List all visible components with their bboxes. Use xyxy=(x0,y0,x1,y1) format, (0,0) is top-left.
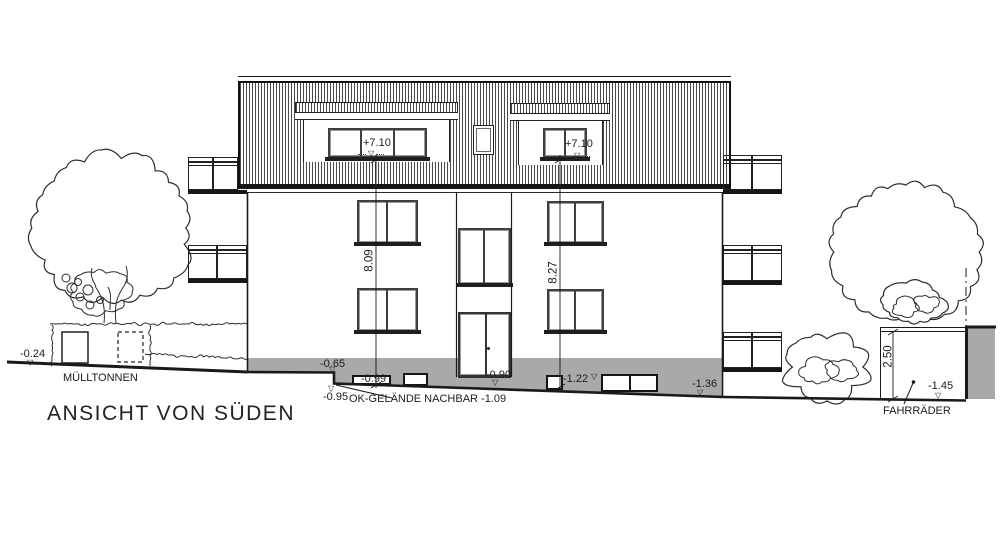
balcony-railing-left-top xyxy=(188,157,238,190)
garbage-bin-dashed xyxy=(118,332,143,362)
window-upper-left xyxy=(357,200,418,244)
elevation-drawing: ANSICHT VON SÜDEN MÜLLTONNEN FAHRRÄDER O… xyxy=(0,0,1000,537)
window-mullion xyxy=(629,376,631,390)
label-muelltonnen: MÜLLTONNEN xyxy=(63,373,138,385)
label-ok-gelaende: OK-GELÄNDE NACHBAR -1.09 xyxy=(349,394,506,406)
basement-window-3 xyxy=(546,375,563,390)
basement-window-2 xyxy=(403,373,428,386)
railing-post xyxy=(751,156,753,189)
bush-right-inner2 xyxy=(825,360,858,382)
sill xyxy=(544,330,607,334)
level-basement-mid: -1.22 xyxy=(563,374,588,386)
railing-post xyxy=(212,158,214,189)
level-basement-right: -1.36 xyxy=(692,379,717,391)
level-entrance-door: -0.90 xyxy=(486,370,511,382)
window-upper-right xyxy=(547,201,604,244)
dim-facade-height-right: 8.27 xyxy=(548,253,561,293)
window-lower-left xyxy=(357,288,418,332)
hedge-post-left xyxy=(51,325,54,366)
roof-ridge-line xyxy=(238,76,731,77)
balcony-slab xyxy=(723,190,782,194)
dormer-right-roofband xyxy=(510,103,610,114)
balcony-railing-right-top xyxy=(723,155,782,190)
level-marker-icon: ▽ xyxy=(329,366,335,374)
level-marker-icon: ▽ xyxy=(492,379,498,387)
label-fahrraeder: FAHRRÄDER xyxy=(883,406,951,418)
railing-post xyxy=(216,246,218,278)
level-dormer-left: +7.10 xyxy=(363,138,391,150)
entrance-door xyxy=(458,312,511,377)
tree-left-inner-foliage xyxy=(71,270,133,317)
balcony-railing-right-bottom xyxy=(723,332,782,368)
hedge-top-line xyxy=(50,322,247,325)
tree-left-crown xyxy=(28,149,191,303)
dormer-left-roofband xyxy=(295,102,458,113)
window-mullion xyxy=(574,291,576,330)
hedge-lower-line xyxy=(145,353,262,360)
window-mullion xyxy=(574,203,576,242)
tree-left-trunk xyxy=(91,266,127,323)
sill xyxy=(544,242,607,246)
balcony-slab xyxy=(188,190,247,194)
drawing-title: ANSICHT VON SÜDEN xyxy=(47,402,295,426)
ground-line-right xyxy=(723,397,966,401)
level-marker-icon: ▽ xyxy=(358,150,384,158)
leader-dot xyxy=(912,380,916,384)
pit-shrub xyxy=(881,280,949,324)
basement-window-4 xyxy=(601,374,658,392)
bush-right xyxy=(782,333,871,404)
window-lower-right xyxy=(547,289,604,332)
bush-right-inner xyxy=(799,357,840,384)
pit-earth-fill xyxy=(966,327,995,399)
dim-pit-depth: 2.50 xyxy=(883,337,896,377)
window-mullion xyxy=(483,230,485,283)
garbage-bin xyxy=(62,332,88,363)
balcony-railing-left-mid xyxy=(188,245,247,279)
level-dormer-right: +7.10 xyxy=(565,139,593,151)
window-mullion xyxy=(393,130,395,156)
balcony-slab xyxy=(723,368,782,372)
level-basement-left: -0.99 xyxy=(361,374,386,386)
stairwell-window xyxy=(458,228,511,285)
dormer-left-fascia xyxy=(295,113,458,120)
level-marker-icon: ▽ xyxy=(591,373,597,381)
pit-shrub-inner xyxy=(892,296,919,317)
balcony-railing-right-mid xyxy=(723,245,782,281)
railing-post xyxy=(751,333,753,367)
level-marker-icon: ▽ xyxy=(328,385,334,393)
window-mullion xyxy=(386,290,388,330)
pit-retaining-wall xyxy=(967,327,997,399)
stairwell-sill xyxy=(456,283,513,287)
ground-line-left xyxy=(7,362,248,372)
skylight xyxy=(473,125,494,155)
pit-shrub-inner2 xyxy=(913,295,939,313)
leader-fahrraeder xyxy=(904,383,913,404)
level-marker-icon: ▽ xyxy=(27,359,33,367)
dormer-right-fascia xyxy=(510,114,610,121)
balcony-slab xyxy=(188,279,247,283)
dim-facade-height-left: 8.09 xyxy=(364,241,377,281)
tree-right-crown xyxy=(829,181,983,321)
window-mullion xyxy=(386,202,388,242)
railing-post xyxy=(751,246,753,280)
level-step-bottom: -0.95 xyxy=(323,392,348,404)
tree-left-leaf-cluster xyxy=(62,274,104,309)
skylight-inner-frame xyxy=(476,128,491,152)
door-leaf-division xyxy=(485,314,487,375)
door-handle-icon xyxy=(487,347,490,350)
eaves-line xyxy=(247,192,723,193)
level-marker-icon: ▽ xyxy=(564,152,590,160)
level-marker-icon: ▽ xyxy=(697,389,703,397)
balcony-slab xyxy=(723,281,782,285)
level-marker-icon: ▽ xyxy=(935,392,941,400)
sill xyxy=(354,330,421,334)
hedge-post-right xyxy=(149,325,152,366)
